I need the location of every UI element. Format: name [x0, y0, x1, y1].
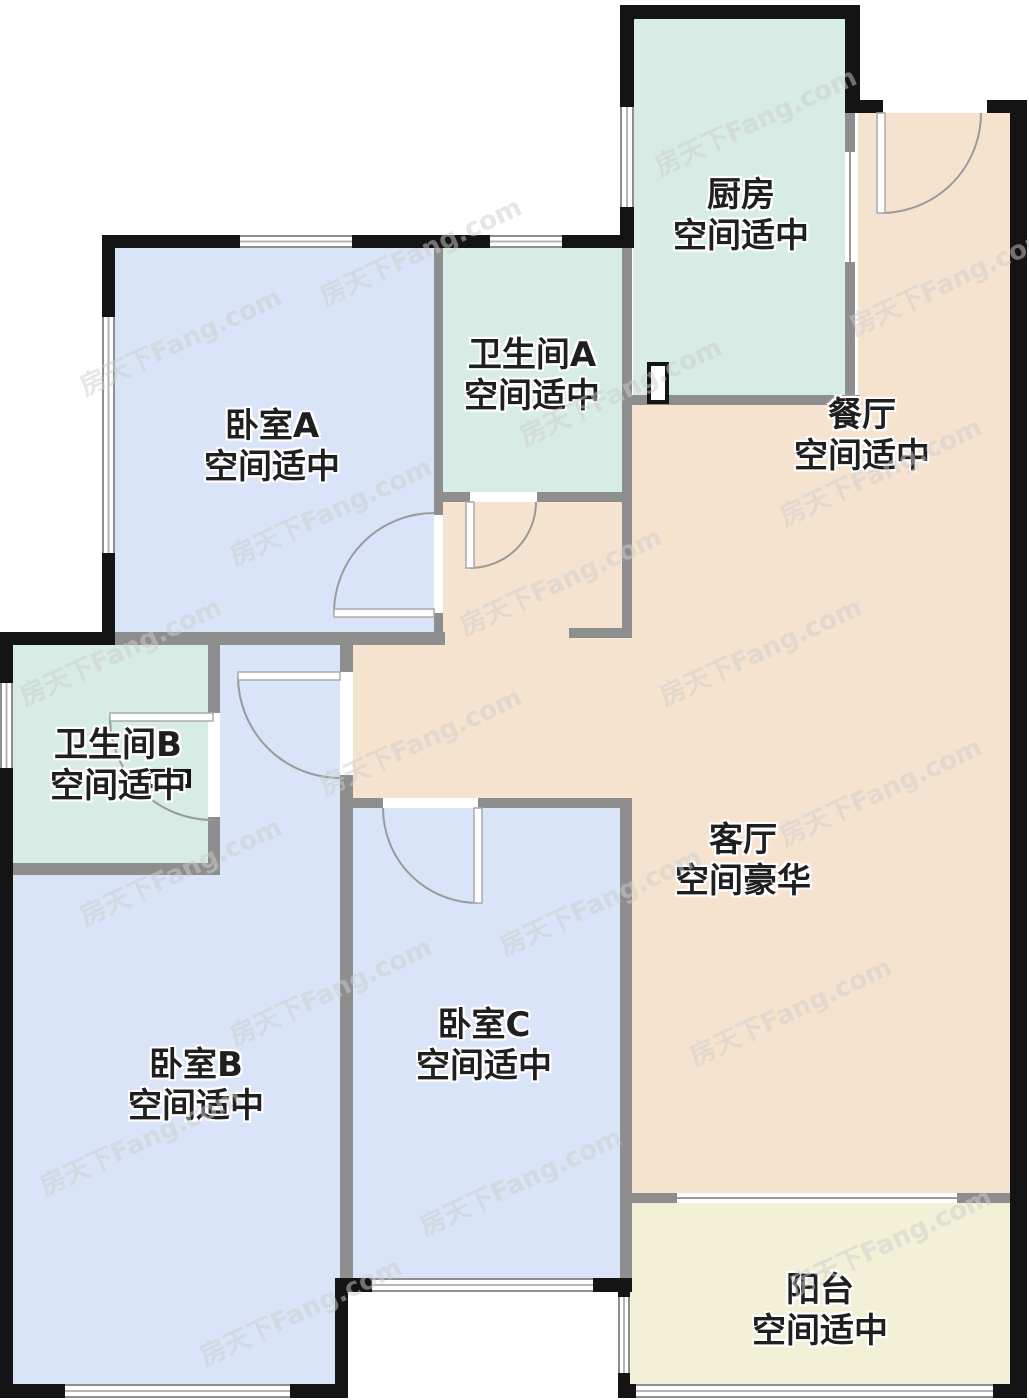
room-size: 空间适中 [464, 376, 600, 417]
room-name: 厨房 [673, 175, 809, 216]
label-bedroom-b: 卧室B 空间适中 [128, 1045, 264, 1127]
label-living: 客厅 空间豪华 [675, 820, 811, 902]
label-dining: 餐厅 空间适中 [794, 395, 930, 477]
door-arcs [110, 113, 981, 903]
room-size: 空间适中 [752, 1311, 888, 1352]
kitchen-fixture-icon [647, 362, 669, 404]
room-size: 空间适中 [416, 1046, 552, 1087]
door-leaf-bedroom-b [238, 672, 340, 680]
door-leaf-bathroom-a [466, 502, 474, 568]
room-size: 空间适中 [673, 216, 809, 257]
room-name: 阳台 [752, 1270, 888, 1311]
room-name: 餐厅 [794, 395, 930, 436]
door-arc-bathroom-a [470, 502, 536, 568]
label-kitchen: 厨房 空间适中 [673, 175, 809, 257]
room-name: 卧室C [416, 1005, 552, 1046]
door-leaf-bedroom-a [334, 609, 434, 617]
door-leaf-bathroom-b [110, 713, 213, 721]
room-name: 卫生间A [464, 335, 600, 376]
door-leaf-bedroom-c [474, 808, 482, 903]
door-arc-entrance [881, 113, 981, 213]
door-leaf-entrance [877, 113, 885, 213]
room-name: 客厅 [675, 820, 811, 861]
door-swing-layer [0, 0, 1029, 1400]
door-arc-bedroom-b [238, 676, 340, 778]
room-name: 卧室A [204, 406, 340, 447]
label-bathroom-b: 卫生间B 空间适中 [50, 725, 186, 807]
label-bedroom-c: 卧室C 空间适中 [416, 1005, 552, 1087]
room-size: 空间适中 [50, 766, 186, 807]
room-size: 空间适中 [128, 1086, 264, 1127]
room-name: 卧室B [128, 1045, 264, 1086]
room-size: 空间适中 [204, 447, 340, 488]
label-bedroom-a: 卧室A 空间适中 [204, 406, 340, 488]
door-arc-bedroom-a [334, 513, 434, 613]
label-balcony: 阳台 空间适中 [752, 1270, 888, 1352]
room-size: 空间豪华 [675, 861, 811, 902]
room-size: 空间适中 [794, 436, 930, 477]
label-bathroom-a: 卫生间A 空间适中 [464, 335, 600, 417]
room-name: 卫生间B [50, 725, 186, 766]
floor-plan: 厨房 空间适中 餐厅 空间适中 卫生间A 空间适中 卧室A 空间适中 卫生间B … [0, 0, 1029, 1400]
door-arc-bedroom-c [383, 808, 478, 903]
